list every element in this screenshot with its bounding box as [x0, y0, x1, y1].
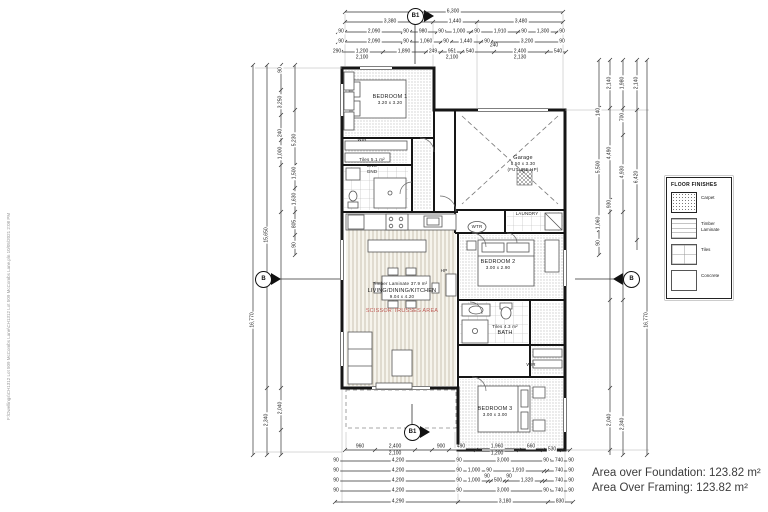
room-label: BATH — [497, 330, 512, 336]
dimension-label: 930 — [608, 199, 613, 209]
room-label: Timber Laminate 37.9 m² — [373, 281, 428, 287]
dimension-label: 249 — [428, 50, 438, 55]
dimension-label: 90 — [337, 40, 345, 45]
legend-item-timber-laminate: Timber Laminate — [671, 218, 728, 239]
room-label: WIR — [526, 362, 535, 368]
dimension-label: 90 — [332, 479, 340, 484]
room-label: 3.00 x 2.90 — [486, 265, 510, 271]
dimension-label: 1,500 — [293, 166, 298, 181]
section-marker-b-left: B — [255, 271, 272, 288]
dimension-label: 3,250 — [279, 95, 284, 110]
dimension-label: 90 — [567, 479, 575, 484]
dimension-label: 960 — [355, 445, 365, 450]
dimension-label: 90 — [558, 30, 566, 35]
room-label: GND — [367, 169, 378, 175]
section-marker-label: B — [261, 276, 265, 282]
timber-laminate-swatch — [671, 218, 697, 239]
dimension-label: 240 — [489, 44, 499, 49]
dimension-label: 1,000 — [467, 479, 482, 484]
dimension-label: 6,420 — [635, 170, 640, 185]
dimension-label: 900 — [436, 445, 446, 450]
dimension-label: 4,200 — [391, 469, 406, 474]
dimension-label: 2,140 — [635, 76, 640, 91]
dimension-label: 2,040 — [279, 401, 284, 416]
dimension-label: 2,340 — [265, 413, 270, 428]
dimension-label: 90 — [455, 469, 463, 474]
section-marker-b1-bottom: B1 — [404, 424, 421, 441]
dimension-label: 1,000 — [452, 30, 467, 35]
dimension-label: 3,380 — [383, 20, 398, 25]
dimension-label: 90 — [442, 40, 450, 45]
dimension-label: 16,770 — [251, 311, 256, 328]
room-label: WTR — [472, 224, 483, 230]
labels-layer: BEDROOM 13.20 x 3.20WIRTiles 5.1 m²ENSGN… — [0, 0, 768, 512]
dimension-label: 90 — [402, 30, 410, 35]
room-label: 3.00 x 3.00 — [483, 412, 507, 418]
dimension-label: 1,890 — [397, 50, 412, 55]
dimension-label: 1,200 — [490, 452, 505, 457]
dimension-label: 90 — [483, 475, 491, 480]
dimension-label: 90 — [567, 489, 575, 494]
legend-item-concrete: Concrete — [671, 270, 728, 291]
dimension-label: 90 — [473, 30, 481, 35]
dimension-label: 830 — [555, 500, 565, 505]
dimension-label: 2,130 — [513, 56, 528, 61]
legend-label: Timber Laminate — [701, 218, 728, 232]
legend-item-carpet: Carpet — [671, 192, 728, 213]
dimension-label: 740 — [554, 479, 564, 484]
area-summary: Area over Foundation: 123.82 m² Area Ove… — [592, 466, 761, 496]
dimension-label: 90 — [437, 30, 445, 35]
floor-finishes-legend: FLOOR FINISHES Carpet Timber Laminate Ti… — [666, 177, 732, 299]
room-label: (FUTURE HP) — [508, 167, 539, 173]
dimension-label: 1,910 — [511, 469, 526, 474]
dimension-label: 90 — [567, 459, 575, 464]
dimension-label: 740 — [554, 489, 564, 494]
dimension-label: 90 — [332, 459, 340, 464]
dimension-label: 1,320 — [520, 479, 535, 484]
dimension-label: 90 — [567, 469, 575, 474]
dimension-label: 1,000 — [279, 146, 284, 161]
dimension-label: 1,440 — [459, 40, 474, 45]
dimension-label: 2,100 — [445, 56, 460, 61]
dimension-label: 4,200 — [391, 479, 406, 484]
dimension-label: 2,090 — [367, 30, 382, 35]
dimension-label: 740 — [554, 469, 564, 474]
dimension-label: 2,340 — [621, 417, 626, 432]
dimension-label: 140 — [597, 107, 602, 117]
dimension-label: 540 — [553, 50, 563, 55]
concrete-swatch — [671, 270, 697, 291]
dimension-label: 240 — [279, 128, 284, 138]
dimension-label: 1,440 — [448, 20, 463, 25]
legend-label: Carpet — [701, 192, 728, 201]
dimension-label: 1,300 — [536, 30, 551, 35]
room-label: SCISSOR TRUSSES AREA — [366, 308, 438, 314]
dimension-label: 5,230 — [293, 133, 298, 148]
dimension-label: 540 — [465, 50, 475, 55]
dimension-label: 4,290 — [391, 500, 406, 505]
dimension-label: 3,000 — [496, 489, 511, 494]
dimension-label: 90 — [455, 459, 463, 464]
dimension-label: 90 — [542, 489, 550, 494]
dimension-label: 90 — [332, 489, 340, 494]
dimension-label: 980 — [418, 30, 428, 35]
dimension-label: 700 — [621, 112, 626, 122]
legend-label: Tiles — [701, 244, 728, 253]
dimension-label: 1,060 — [597, 216, 602, 231]
dimension-label: 1,980 — [621, 76, 626, 91]
floor-plan-page: BEDROOM 13.20 x 3.20WIRTiles 5.1 m²ENSGN… — [0, 0, 768, 512]
carpet-swatch — [671, 192, 697, 213]
dimension-label: 3,200 — [520, 40, 535, 45]
section-marker-label: B1 — [409, 429, 417, 435]
dimension-label: 3,480 — [514, 20, 529, 25]
dimension-label: 90 — [455, 479, 463, 484]
section-marker-b1-top: B1 — [407, 8, 424, 25]
dimension-label: 4,490 — [608, 146, 613, 161]
dimension-label: 6,300 — [446, 10, 461, 15]
dimension-label: 2,140 — [608, 76, 613, 91]
dimension-label: 2,040 — [608, 413, 613, 428]
dimension-label: 16,770 — [645, 311, 650, 328]
legend-item-tiles: Tiles — [671, 244, 728, 265]
section-marker-b-right: B — [623, 271, 640, 288]
dimension-label: 90 — [332, 469, 340, 474]
dimension-label: 1,000 — [467, 469, 482, 474]
dimension-label: 660 — [526, 445, 536, 450]
dimension-label: 5,500 — [597, 160, 602, 175]
dimension-label: 1,960 — [490, 445, 505, 450]
dimension-label: 90 — [597, 239, 602, 247]
dimension-label: 4,200 — [391, 459, 406, 464]
dimension-label: 500 — [493, 479, 503, 484]
room-label: 3.20 x 3.20 — [378, 100, 402, 106]
dimension-label: 90 — [520, 30, 528, 35]
section-marker-label: B1 — [412, 13, 420, 19]
dimension-label: 490 — [456, 445, 466, 450]
dimension-label: 90 — [542, 459, 550, 464]
area-over-foundation: Area over Foundation: 123.82 m² — [592, 466, 761, 481]
section-marker-label: B — [629, 276, 633, 282]
dimension-label: 90 — [455, 489, 463, 494]
dimension-label: 90 — [293, 241, 298, 249]
room-label: HP — [441, 268, 448, 274]
dimension-label: 740 — [554, 459, 564, 464]
dimension-label: 1,060 — [419, 40, 434, 45]
file-path-text: F:\Dwellings\CH1312 Lot 509 McCombs Lane… — [6, 213, 11, 420]
room-label: WIR — [357, 137, 366, 143]
area-over-framing: Area Over Framing: 123.82 m² — [592, 481, 761, 496]
dimension-label: 2,100 — [388, 452, 403, 457]
dimension-label: 530 — [547, 448, 557, 453]
dimension-label: 90 — [505, 475, 513, 480]
dimension-label: 90 — [558, 40, 566, 45]
dimension-label: 2,100 — [355, 56, 370, 61]
dimension-label: 290 — [332, 50, 342, 55]
dimension-label: 805 — [293, 219, 298, 229]
dimension-label: 3,180 — [498, 500, 513, 505]
room-label: 9.04 x 4.20 — [390, 294, 414, 300]
legend-title: FLOOR FINISHES — [671, 182, 728, 188]
dimension-label: 4,200 — [391, 489, 406, 494]
dimension-label: 1,910 — [493, 30, 508, 35]
dimension-label: 2,090 — [367, 40, 382, 45]
dimension-label: 90 — [279, 66, 284, 74]
dimension-label: 15,650 — [265, 226, 270, 243]
room-label: LAUNDRY — [516, 211, 539, 217]
dimension-label: 90 — [337, 30, 345, 35]
dimension-label: 1,630 — [293, 192, 298, 207]
legend-label: Concrete — [701, 270, 728, 279]
tiles-swatch — [671, 244, 697, 265]
dimension-label: 4,930 — [621, 165, 626, 180]
dimension-label: 90 — [402, 40, 410, 45]
dimension-label: 3,000 — [496, 459, 511, 464]
dimension-label: 2,400 — [388, 445, 403, 450]
